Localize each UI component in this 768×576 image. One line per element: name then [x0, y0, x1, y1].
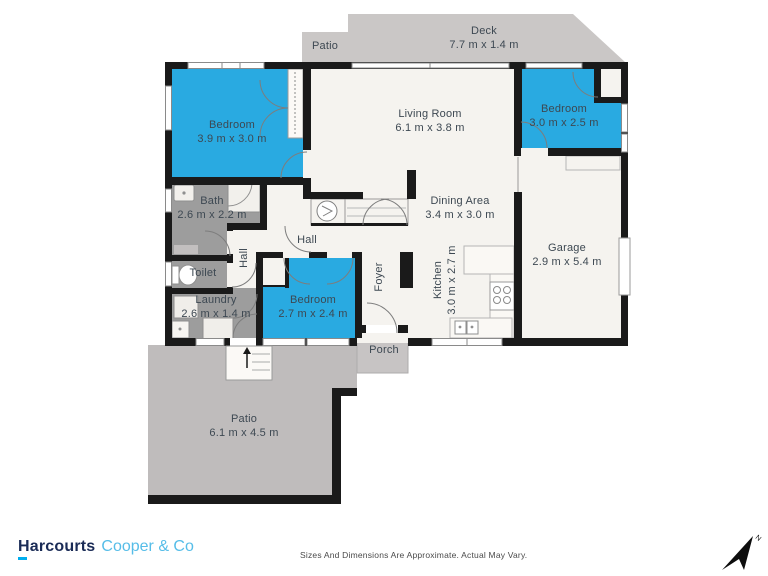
kitchen-counter-top	[464, 246, 514, 274]
hw-cylinder	[317, 201, 337, 221]
brand-underline-accent	[18, 557, 27, 560]
laundry-bench	[203, 318, 233, 340]
brand-logo: HarcourtsCooper & Co	[18, 538, 194, 556]
entry-steps	[226, 346, 272, 380]
room-label-deck: Deck 7.7 m x 1.4 m	[449, 24, 518, 52]
shelf-closet	[345, 199, 408, 225]
room-label-laundry: Laundry 2.6 m x 1.4 m	[181, 293, 250, 321]
room-label-hall-side: Hall	[237, 248, 251, 268]
room-label-bedroom-bottom: Bedroom 2.7 m x 2.4 m	[278, 293, 347, 321]
room-label-bedroom-left: Bedroom 3.9 m x 3.0 m	[197, 118, 266, 146]
room-label-kitchen: Kitchen 3.0 m x 2.7 m	[431, 245, 459, 314]
compass-north-icon: N	[714, 528, 764, 574]
brand-suffix: Cooper & Co	[101, 538, 194, 555]
compass-n-label: N	[754, 534, 762, 543]
room-label-foyer: Foyer	[372, 262, 386, 291]
garage-door	[619, 238, 630, 295]
toilet-tank	[172, 266, 179, 284]
room-label-patio-top: Patio	[312, 39, 338, 53]
bath-mat	[174, 245, 198, 254]
brand-name: Harcourts	[18, 538, 95, 555]
wardrobe-strip	[288, 69, 303, 138]
garage-niche	[566, 156, 620, 170]
room-label-dining: Dining Area 3.4 m x 3.0 m	[425, 194, 494, 222]
room-label-patio-bottom: Patio 6.1 m x 4.5 m	[209, 412, 278, 440]
room-label-living-room: Living Room 6.1 m x 3.8 m	[395, 107, 464, 135]
room-label-garage: Garage 2.9 m x 5.4 m	[532, 241, 601, 269]
room-label-bedroom-top-right: Bedroom 3.0 m x 2.5 m	[529, 102, 598, 130]
stove	[490, 282, 514, 310]
bedroom-b-closet	[263, 258, 287, 286]
floor-plan-page: Patio Deck 7.7 m x 1.4 m Bedroom 3.9 m x…	[0, 0, 768, 576]
bedroom-tr-closet	[601, 69, 621, 100]
room-label-hall: Hall	[297, 233, 317, 247]
room-label-toilet: Toilet	[190, 266, 217, 280]
room-label-bath: Bath 2.6 m x 2.2 m	[177, 194, 246, 222]
room-label-porch: Porch	[369, 343, 399, 357]
disclaimer-text: Sizes And Dimensions Are Approximate. Ac…	[300, 550, 527, 560]
